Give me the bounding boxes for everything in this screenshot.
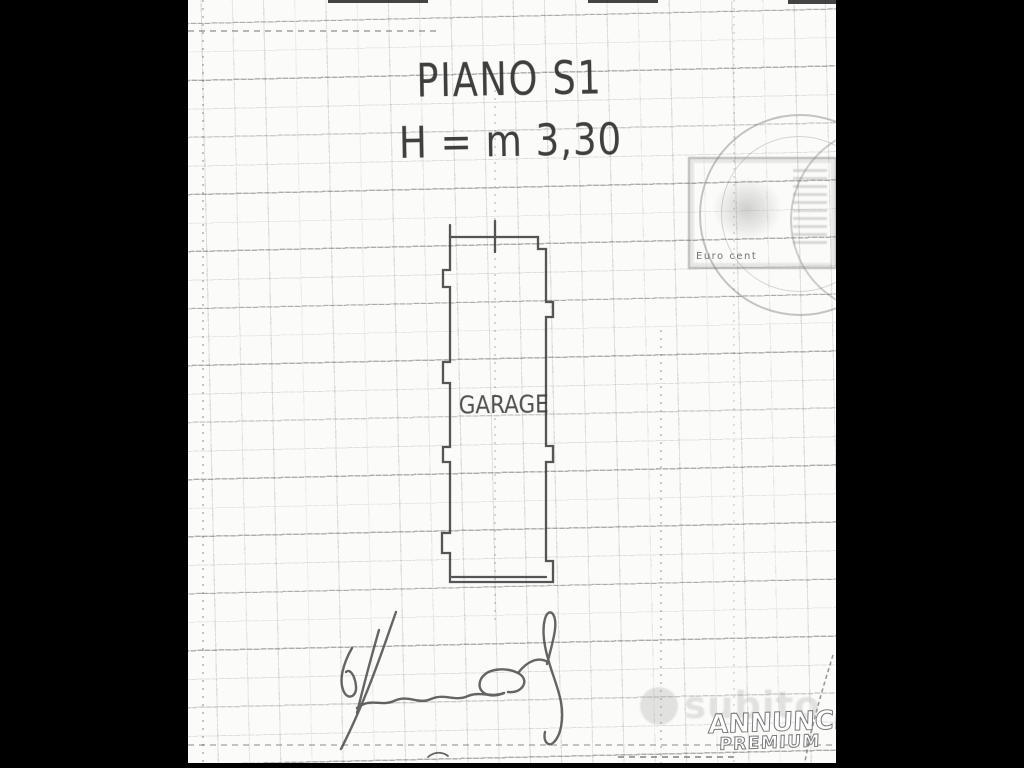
watermark-annunci-premium: ANNUNCI PREMIUM (707, 708, 833, 754)
signature-scribble (341, 612, 562, 757)
page-root: Euro cent PIANO S1 H = m 3,30 (0, 0, 1024, 768)
premium-text: PREMIUM (707, 733, 833, 754)
room-label: GARAGE (459, 389, 542, 419)
subito-logo-icon (640, 687, 678, 725)
garage-floorplan-outline (188, 0, 836, 763)
scanned-floorplan-document: Euro cent PIANO S1 H = m 3,30 (188, 0, 836, 763)
